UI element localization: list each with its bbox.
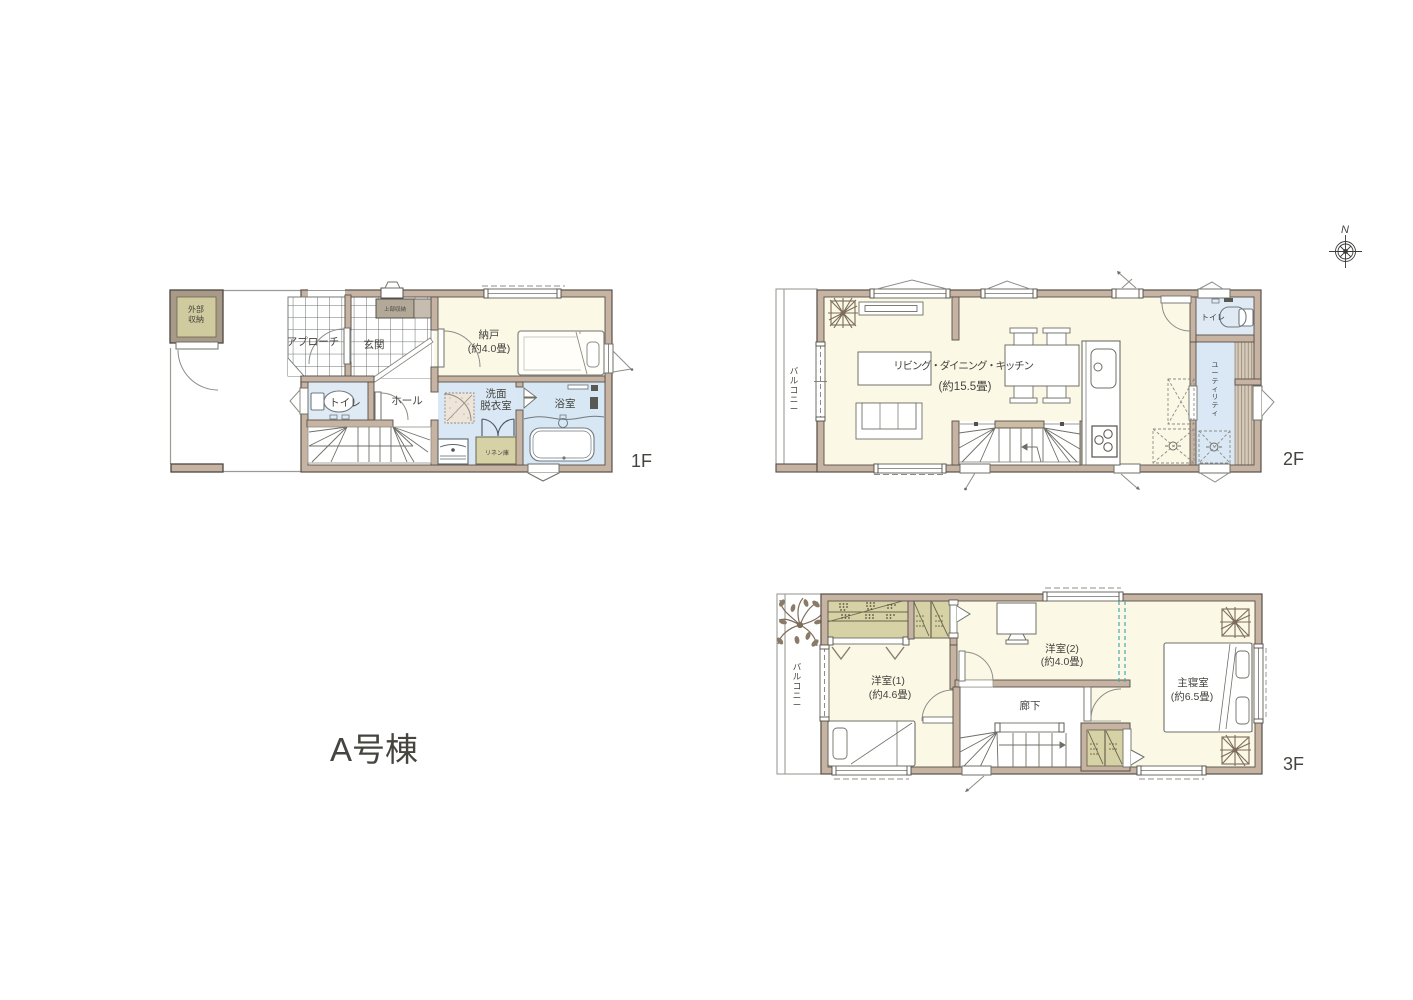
svg-text:主寝室: 主寝室 [1177, 676, 1209, 689]
svg-text:A号棟: A号棟 [330, 731, 418, 768]
svg-text:1F: 1F [631, 451, 652, 471]
svg-text:(約15.5畳): (約15.5畳) [938, 379, 991, 393]
svg-text:洋室(2): 洋室(2) [1045, 642, 1079, 655]
svg-text:上部収納: 上部収納 [384, 305, 407, 313]
svg-text:玄関: 玄関 [364, 338, 385, 351]
svg-text:バルコニー: バルコニー [793, 662, 802, 710]
svg-text:ホール: ホール [391, 395, 423, 407]
svg-text:廊下: 廊下 [1020, 699, 1041, 712]
svg-text:アプローチ: アプローチ [287, 336, 340, 348]
svg-text:トイレ: トイレ [1201, 313, 1225, 322]
svg-text:ユーティリティ: ユーティリティ [1212, 362, 1219, 417]
svg-text:収納: 収納 [188, 314, 204, 324]
svg-text:バルコニー: バルコニー [790, 366, 799, 414]
svg-text:浴室: 浴室 [555, 397, 576, 410]
svg-text:脱衣室: 脱衣室 [480, 399, 512, 412]
svg-text:(約4.0畳): (約4.0畳) [468, 342, 511, 355]
svg-text:リネン庫: リネン庫 [485, 449, 509, 457]
svg-text:(約6.5畳): (約6.5畳) [1171, 690, 1214, 703]
svg-text:リビング・ダイニング・キッチン: リビング・ダイニング・キッチン [893, 359, 1033, 372]
svg-text:(約4.6畳): (約4.6畳) [869, 688, 912, 701]
svg-text:2F: 2F [1283, 449, 1304, 469]
svg-text:(約4.0畳): (約4.0畳) [1041, 655, 1084, 668]
svg-text:洋室(1): 洋室(1) [871, 674, 905, 687]
svg-text:N: N [1341, 224, 1349, 236]
svg-text:トイレ: トイレ [329, 397, 361, 409]
svg-text:3F: 3F [1283, 754, 1304, 774]
svg-text:納戸: 納戸 [479, 328, 500, 341]
svg-text:外部: 外部 [188, 304, 204, 314]
svg-text:洗面: 洗面 [486, 388, 507, 400]
